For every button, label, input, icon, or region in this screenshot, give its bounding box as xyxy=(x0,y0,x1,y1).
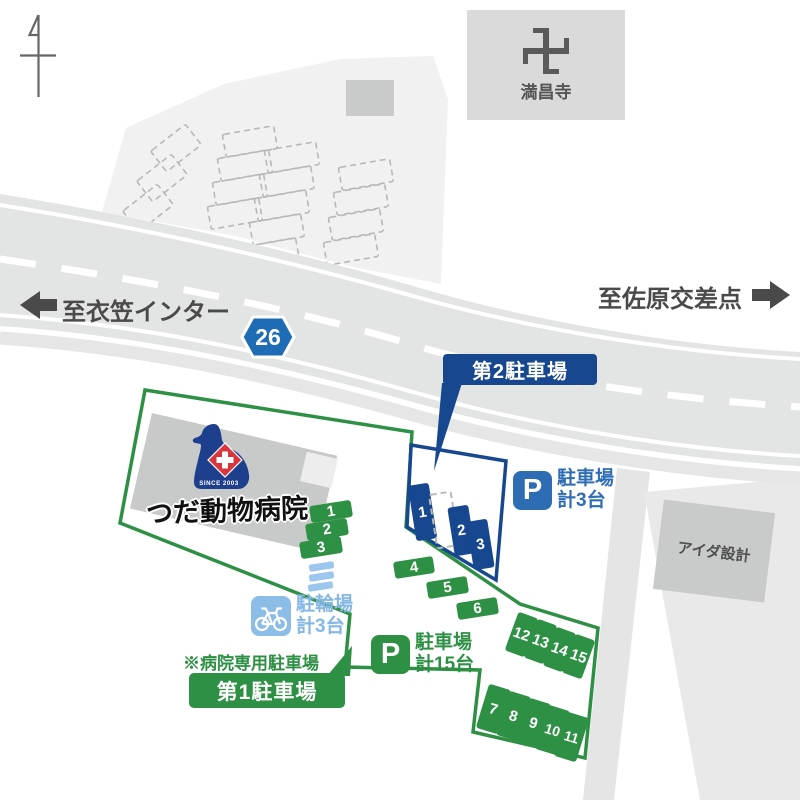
hospital-logo-dog-icon: SINCE 2003 xyxy=(183,422,255,492)
route-number: 26 xyxy=(246,324,290,351)
lot2-capacity-line2: 計3台 xyxy=(557,490,606,512)
bicycle-label-line2: 計3台 xyxy=(296,616,345,638)
p-letter: P xyxy=(523,474,542,507)
p-letter: P xyxy=(381,638,400,671)
temple-name: 満昌寺 xyxy=(521,78,572,103)
logo-since-text: SINCE 2003 xyxy=(199,480,238,487)
bicycle-label-line1: 駐輪場 xyxy=(296,594,353,616)
upper-lot-building xyxy=(346,80,394,116)
aida-sekkei-building: アイダ設計 xyxy=(653,500,775,603)
temple-block: 満昌寺 xyxy=(467,10,625,120)
lot1-title-label: 第1駐車場 xyxy=(189,673,345,708)
lot2-capacity-line1: 駐車場 xyxy=(557,468,614,490)
bicycle-icon xyxy=(251,596,291,636)
parking-p-icon-lot2: P xyxy=(513,471,552,510)
hospital-name: つだ動物病院 xyxy=(145,486,308,531)
north-indicator-icon xyxy=(20,15,56,97)
lot1-capacity-line1: 駐車場 xyxy=(415,632,472,654)
destination-right: 至佐原交差点 xyxy=(598,279,742,314)
lot1-capacity-line2: 計15台 xyxy=(415,654,474,676)
right-arrow-icon xyxy=(752,281,790,309)
lot1-label-pointer xyxy=(327,646,352,676)
aida-sekkei-name: アイダ設計 xyxy=(676,536,752,566)
parking-p-icon-lot1: P xyxy=(371,635,410,674)
access-map: 満昌寺 至衣笠インター 至佐原交差点 26 SINCE 2003 つだ動物病院 … xyxy=(0,0,800,800)
lot2-title-label: 第2駐車場 xyxy=(443,354,597,385)
map-background xyxy=(0,0,800,800)
lot1-note: ※病院専用駐車場 xyxy=(183,649,319,674)
destination-left: 至衣笠インター xyxy=(62,292,230,327)
side-street xyxy=(583,468,650,800)
manji-temple-icon xyxy=(523,28,569,74)
